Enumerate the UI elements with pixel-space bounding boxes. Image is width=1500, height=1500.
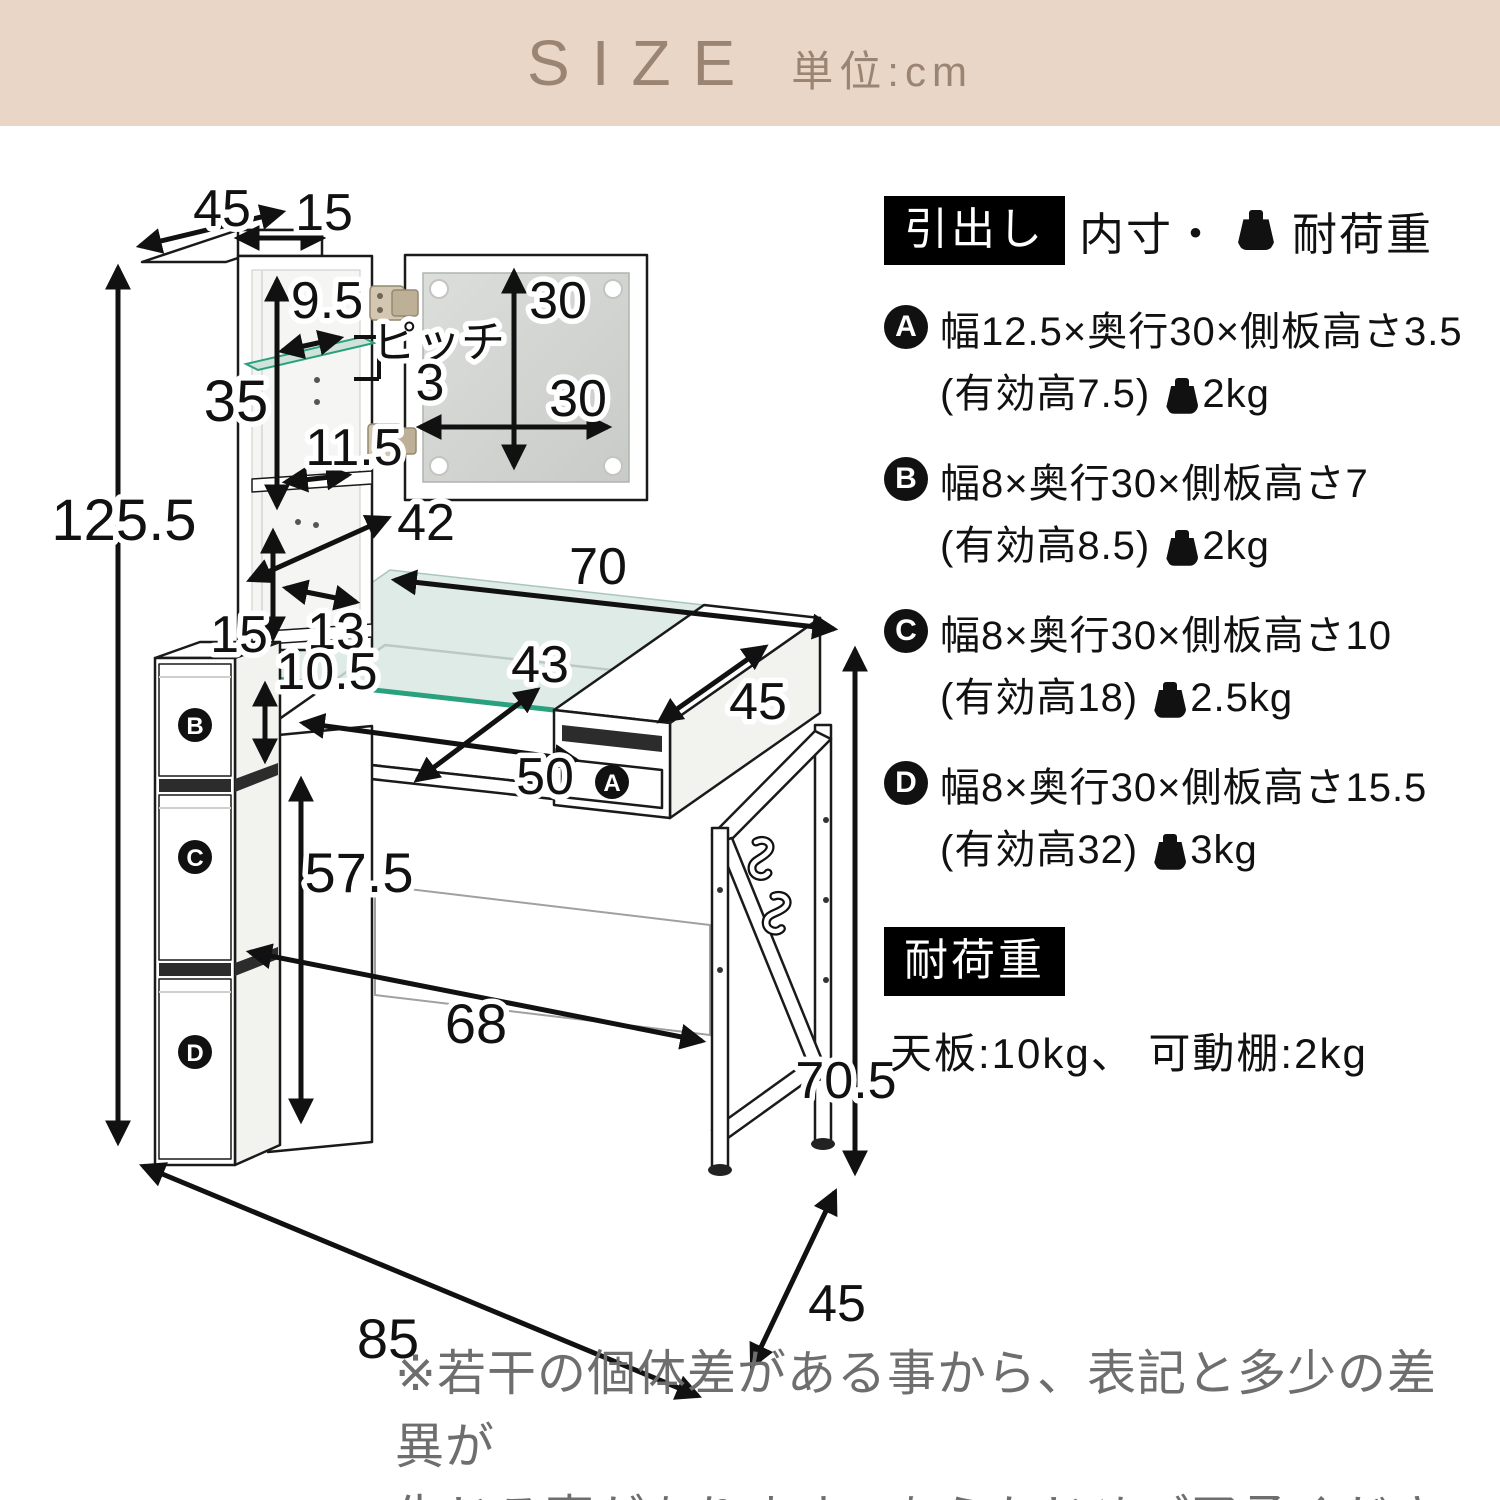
dim-floor-depth: 45	[808, 1275, 866, 1333]
drawer-c-front	[159, 795, 231, 960]
spec-panel: 引出し 内寸・ 耐荷重 A 幅12.5×奥行30×側板高さ3.5 (有効高7.5…	[884, 196, 1484, 1081]
drawer-a-marker: A	[595, 765, 629, 799]
spec-d-line2: (有効高32) 3kg	[940, 819, 1427, 881]
furniture-dimension-diagram: A	[40, 180, 910, 1430]
weight-icon	[1166, 530, 1198, 566]
drawer-badge: 引出し	[884, 196, 1065, 265]
letter-badge-d: D	[884, 761, 928, 805]
dim-desk-height: 70.5	[795, 1052, 896, 1110]
spec-a-line2: (有効高7.5) 2kg	[940, 363, 1463, 425]
disclaimer-line2: 生じる事があります。あらかじめご了承ください。	[395, 1483, 1485, 1500]
page: SIZE 単位:cm	[0, 0, 1500, 1500]
dim-total-height: 125.5	[51, 488, 196, 553]
dim-pitch-value: 3	[416, 354, 445, 412]
spec-c-line1: 幅8×奥行30×側板高さ10	[940, 605, 1392, 667]
weight-icon	[1238, 210, 1274, 250]
dim-mirror-width: 30	[549, 370, 607, 428]
drawer-c-marker: C	[178, 840, 212, 874]
heading-inner-size: 内寸・	[1079, 198, 1220, 263]
dim-top-depth: 45	[193, 180, 251, 238]
desk-frame-front	[708, 828, 732, 1176]
dim-glass-depth: 43	[511, 636, 569, 694]
spec-panel-heading: 引出し 内寸・ 耐荷重	[884, 196, 1484, 265]
dim-shelf-depth: 9.5	[291, 272, 363, 330]
svg-text:A: A	[603, 770, 620, 797]
spec-c-line2: (有効高18) 2.5kg	[940, 667, 1392, 729]
dim-top-width: 15	[295, 184, 353, 242]
spec-b-line1: 幅8×奥行30×側板高さ7	[940, 453, 1369, 515]
drawer-column: B C D	[155, 642, 280, 1165]
drawer-d-marker: D	[178, 1035, 212, 1069]
heading-load: 耐荷重	[1292, 198, 1433, 263]
weight-icon	[1166, 378, 1198, 414]
load-badge: 耐荷重	[884, 927, 1065, 996]
spec-b-line2: (有効高8.5) 2kg	[940, 515, 1369, 577]
banner: SIZE 単位:cm	[0, 0, 1500, 126]
dim-inner-width: 68	[445, 992, 507, 1055]
dim-mirror-height: 30	[529, 272, 587, 330]
banner-title: SIZE	[527, 26, 757, 100]
load-capacity-section: 耐荷重	[884, 927, 1484, 996]
hinge-top	[370, 286, 418, 320]
svg-text:D: D	[186, 1040, 203, 1067]
banner-unit: 単位:cm	[791, 28, 973, 99]
drawer-spec-b: B 幅8×奥行30×側板高さ7 (有効高8.5) 2kg	[884, 453, 1484, 577]
load-capacity-text: 天板:10kg、 可動棚:2kg	[890, 1020, 1484, 1081]
dim-middle-height: 15	[210, 606, 268, 664]
letter-badge-b: B	[884, 457, 928, 501]
dim-middle-depth: 42	[397, 494, 455, 552]
svg-text:B: B	[186, 713, 203, 740]
dim-glass-gap: 10.5	[276, 643, 377, 701]
dim-glass-width: 50	[516, 748, 574, 806]
letter-badge-c: C	[884, 609, 928, 653]
drawer-spec-c: C 幅8×奥行30×側板高さ10 (有効高18) 2.5kg	[884, 605, 1484, 729]
dim-desk-depth: 45	[729, 673, 787, 731]
desk-side-panel	[268, 726, 372, 1152]
disclaimer-line1: ※若干の個体差がある事から、表記と多少の差異が	[395, 1338, 1485, 1483]
weight-icon	[1154, 834, 1186, 870]
dim-under-height: 57.5	[305, 841, 414, 904]
weight-icon	[1154, 682, 1186, 718]
disclaimer: ※若干の個体差がある事から、表記と多少の差異が 生じる事があります。あらかじめご…	[395, 1338, 1485, 1500]
drawer-spec-d: D 幅8×奥行30×側板高さ15.5 (有効高32) 3kg	[884, 757, 1484, 881]
dim-desk-width: 70	[569, 538, 627, 596]
svg-text:C: C	[186, 845, 203, 872]
spec-a-line1: 幅12.5×奥行30×側板高さ3.5	[940, 301, 1463, 363]
dim-upper-height: 35	[204, 369, 269, 434]
spec-d-line1: 幅8×奥行30×側板高さ15.5	[940, 757, 1427, 819]
drawer-spec-a: A 幅12.5×奥行30×側板高さ3.5 (有効高7.5) 2kg	[884, 301, 1484, 425]
drawer-b-marker: B	[178, 708, 212, 742]
letter-badge-a: A	[884, 305, 928, 349]
dim-lower-shelf-depth: 11.5	[305, 419, 402, 477]
desk-back-panel	[375, 885, 710, 1035]
